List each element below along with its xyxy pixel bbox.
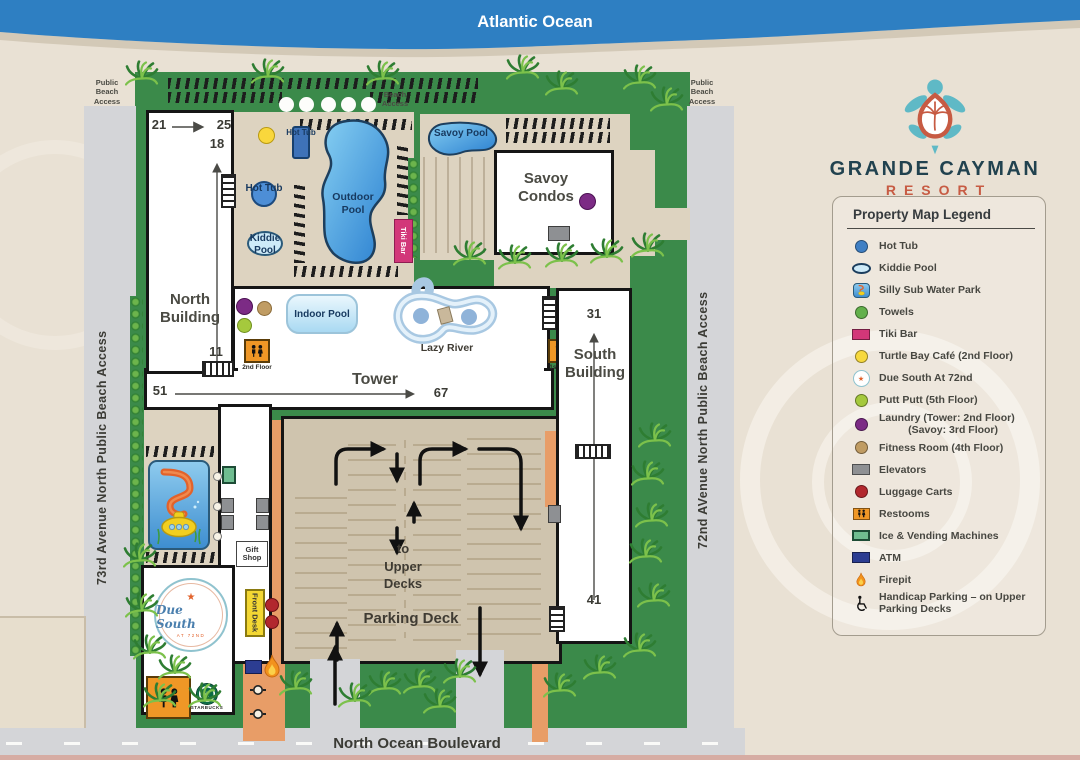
palm-tree-icon [125,593,159,628]
north-building-label: North Building [150,291,230,328]
palm-tree-icon [453,241,487,276]
outdoor-pool-label: Outdoor Pool [324,191,382,217]
room-range-arrow [170,121,212,133]
gift-shop-label: Gift Shop [237,546,267,563]
laundry-icon [579,193,596,210]
to-upper-decks-label: to Upper Decks [377,540,429,593]
left-street-label: 73rd Avenue North Public Beach Access [95,262,125,654]
lounge-chairs [168,92,282,103]
due-south-logo-sub: AT 72ND [177,633,206,638]
silly-sub-water-park [148,460,210,550]
legend-item: Tiki Bar [843,324,1037,345]
elevator-icon [548,505,561,523]
elevator-icon [256,515,269,530]
turtle-bay-cafe-icon [843,350,879,363]
south-building-label: South Building [560,346,630,383]
due-south-logo-text: Due South [156,603,226,631]
beach-access-label: Public Beach Access [679,78,725,106]
lounge-chairs [146,552,220,563]
patio-table [213,472,222,481]
legend-item-label: Turtle Bay Café (2nd Floor) [879,350,1013,362]
tiki-bar-icon: Tiki Bar [394,219,413,263]
star-icon: ★ [187,593,196,603]
palm-tree-icon [506,55,540,90]
palm-tree-icon [623,633,657,668]
lounge-chairs [506,132,610,143]
beach-umbrella [341,97,356,112]
tiki-bar-label: Tiki Bar [399,227,408,254]
legend-item-label: Elevators [879,464,926,476]
savoy-parking-rows [423,157,493,253]
patio-table [213,532,222,541]
patio-table [250,708,266,720]
palm-tree-icon [545,243,579,278]
curb-strip [0,755,1080,760]
palm-tree-icon [123,543,157,578]
palm-tree-icon [143,683,177,718]
legend-item: Silly Sub Water Park [843,280,1037,301]
palm-tree-icon [631,461,665,496]
palm-tree-icon [637,583,671,618]
stairs [549,606,565,632]
laundry-icon [236,298,253,315]
kiddie-pool-icon [843,263,879,274]
turtle-bay-cafe-icon [258,127,275,144]
elevators-icon [843,464,879,475]
front-desk-label: Front Desk [251,593,260,632]
tower-label: Tower [340,370,410,390]
legend-list: Hot TubKiddie PoolSilly Sub Water ParkTo… [843,236,1037,615]
stairs [542,296,557,330]
legend-item-label: Fitness Room (4th Floor) [879,442,1003,454]
palm-tree-icon [423,689,457,724]
legend-item-label: ATM [879,552,901,564]
fitness-room-icon [257,301,272,316]
beach-umbrella [279,97,294,112]
hot-tub-label: Hot Tub [243,183,285,195]
legend-item-label: Handicap Parking – on Upper Parking Deck… [879,591,1025,615]
luggage-cart-icon [265,615,279,629]
beach-umbrella [321,97,336,112]
legend-item: Laundry (Tower: 2nd Floor) (Savoy: 3rd F… [843,412,1037,436]
fitness-room-icon [843,441,879,454]
bottom-street-label: North Ocean Boulevard [312,735,522,753]
lounge-chairs [146,446,214,457]
patio-table [250,684,266,696]
palm-tree-icon [251,59,285,94]
towels-icon [843,306,879,319]
ice-vending-icon [843,530,879,541]
ocean-label: Atlantic Ocean [477,13,593,31]
palm-tree-icon [631,233,665,268]
savoy-condos-label: Savoy Condos [504,170,588,207]
gift-shop: Gift Shop [236,541,268,567]
legend-item-label: Hot Tub [879,240,918,252]
palm-tree-icon [125,61,159,96]
legend-item: Restooms [843,503,1037,524]
ice-vending-icon [222,466,236,484]
legend-item-label: Ice & Vending Machines [879,530,999,542]
palm-tree-icon [629,539,663,574]
palm-tree-icon [133,635,167,670]
palm-tree-icon [583,655,617,690]
elevator-icon [256,498,269,513]
room-number: 11 [202,344,230,359]
palm-tree-icon [638,423,672,458]
elevator-icon [221,515,234,530]
legend-item-label: Due South At 72nd [879,372,973,384]
elevator-icon [548,226,570,241]
tiki-bar-icon [843,329,879,340]
putt-putt-icon [237,318,252,333]
legend-item-label: Towels [879,306,914,318]
legend-item: ATM [843,547,1037,568]
restrooms-icon [843,508,879,520]
palm-tree-icon [545,71,579,106]
front-desk: Front Desk [245,589,265,637]
legend-title: Property Map Legend [843,207,1037,222]
atm-icon [245,660,262,674]
palm-tree-icon [590,239,624,274]
legend-item: Fitness Room (4th Floor) [843,437,1037,458]
legend-item: Putt Putt (5th Floor) [843,390,1037,411]
room-number: 21 [148,117,170,132]
parking-deck-label: Parking Deck [346,610,476,628]
legend-item: Handicap Parking – on Upper Parking Deck… [843,591,1037,615]
legend-item: Turtle Bay Café (2nd Floor) [843,346,1037,367]
neighbor-building [0,616,86,728]
palm-tree-icon [279,671,313,706]
putt-putt-icon [843,394,879,407]
room-range-arrow [173,388,425,400]
luggage-carts-icon [843,485,879,498]
palm-tree-icon [650,87,684,122]
lazy-river-label: Lazy River [410,342,484,355]
palm-tree-icon [635,503,669,538]
palm-tree-icon [543,673,577,708]
legend-item-label: Tiki Bar [879,328,917,340]
room-number: 25 [212,117,236,132]
handicap-parking-icon [843,595,879,612]
lounge-chairs [506,118,610,129]
lounge-chairs [168,78,478,89]
silly-sub-icon [843,283,879,298]
lounge-chairs [294,183,305,263]
palm-tree-icon [188,683,222,718]
legend-item-label: Silly Sub Water Park [879,284,981,296]
elevator-icon [221,498,234,513]
palm-tree-icon [368,671,402,706]
kiddie-pool-label: Kiddie Pool [238,233,292,257]
lounge-chairs [294,266,398,277]
restroom-icon [244,339,270,363]
right-street-label: 72nd AVenue North Public Beach Access [696,185,726,655]
palm-tree-icon [366,61,400,96]
legend-item: Firepit [843,569,1037,590]
room-number: 67 [428,385,454,400]
stairs [221,174,236,208]
legend-item-label: Kiddie Pool [879,262,937,274]
legend-item: Luggage Carts [843,481,1037,502]
atm-icon [843,552,879,563]
legend-item: Elevators [843,459,1037,480]
turtle-logo-icon [887,76,983,156]
indoor-pool-label: Indoor Pool [294,309,350,320]
restroom-floor-label: 2nd Floor [238,364,276,371]
beach-access-label: Public Beach Access [84,78,130,106]
room-number: 41 [580,592,608,607]
savoy-pool-label: Savoy Pool [425,128,497,140]
legend-divider [847,228,1035,229]
legend-item-label: Putt Putt (5th Floor) [879,394,978,406]
laundry-icon [843,418,879,431]
legend-item: Hot Tub [843,236,1037,257]
room-number: 18 [203,136,231,151]
resort-property-map: to Upper Decks Parking Deck 21 25 18 Nor… [0,0,1080,760]
firepit-icon [843,572,879,588]
indoor-pool: Indoor Pool [286,294,358,334]
legend-item-label: Luggage Carts [879,486,953,498]
lounge-chairs [397,145,408,215]
legend-item-label: Firepit [879,574,911,586]
legend-item: Ice & Vending Machines [843,525,1037,546]
legend-item-label: Laundry (Tower: 2nd Floor) (Savoy: 3rd F… [879,412,1015,436]
stairs [202,361,234,377]
legend-panel: Property Map Legend Hot TubKiddie PoolSi… [832,196,1046,636]
luggage-cart-icon [265,598,279,612]
legend-item: Towels [843,302,1037,323]
stairs [575,444,611,459]
legend-item: ★Due South At 72nd [843,368,1037,389]
room-number: 51 [148,383,172,398]
beach-umbrella [299,97,314,112]
brand-name: GRANDE CAYMAN [820,158,1050,181]
legend-item: Kiddie Pool [843,258,1037,279]
due-south-icon: ★ [843,370,879,387]
room-number: 31 [580,306,608,321]
ocean-band: Atlantic Ocean [0,0,1080,64]
palm-tree-icon [338,683,372,718]
legend-item-label: Restooms [879,508,930,520]
palm-tree-icon [498,245,532,280]
hot-tub-icon [843,240,879,253]
